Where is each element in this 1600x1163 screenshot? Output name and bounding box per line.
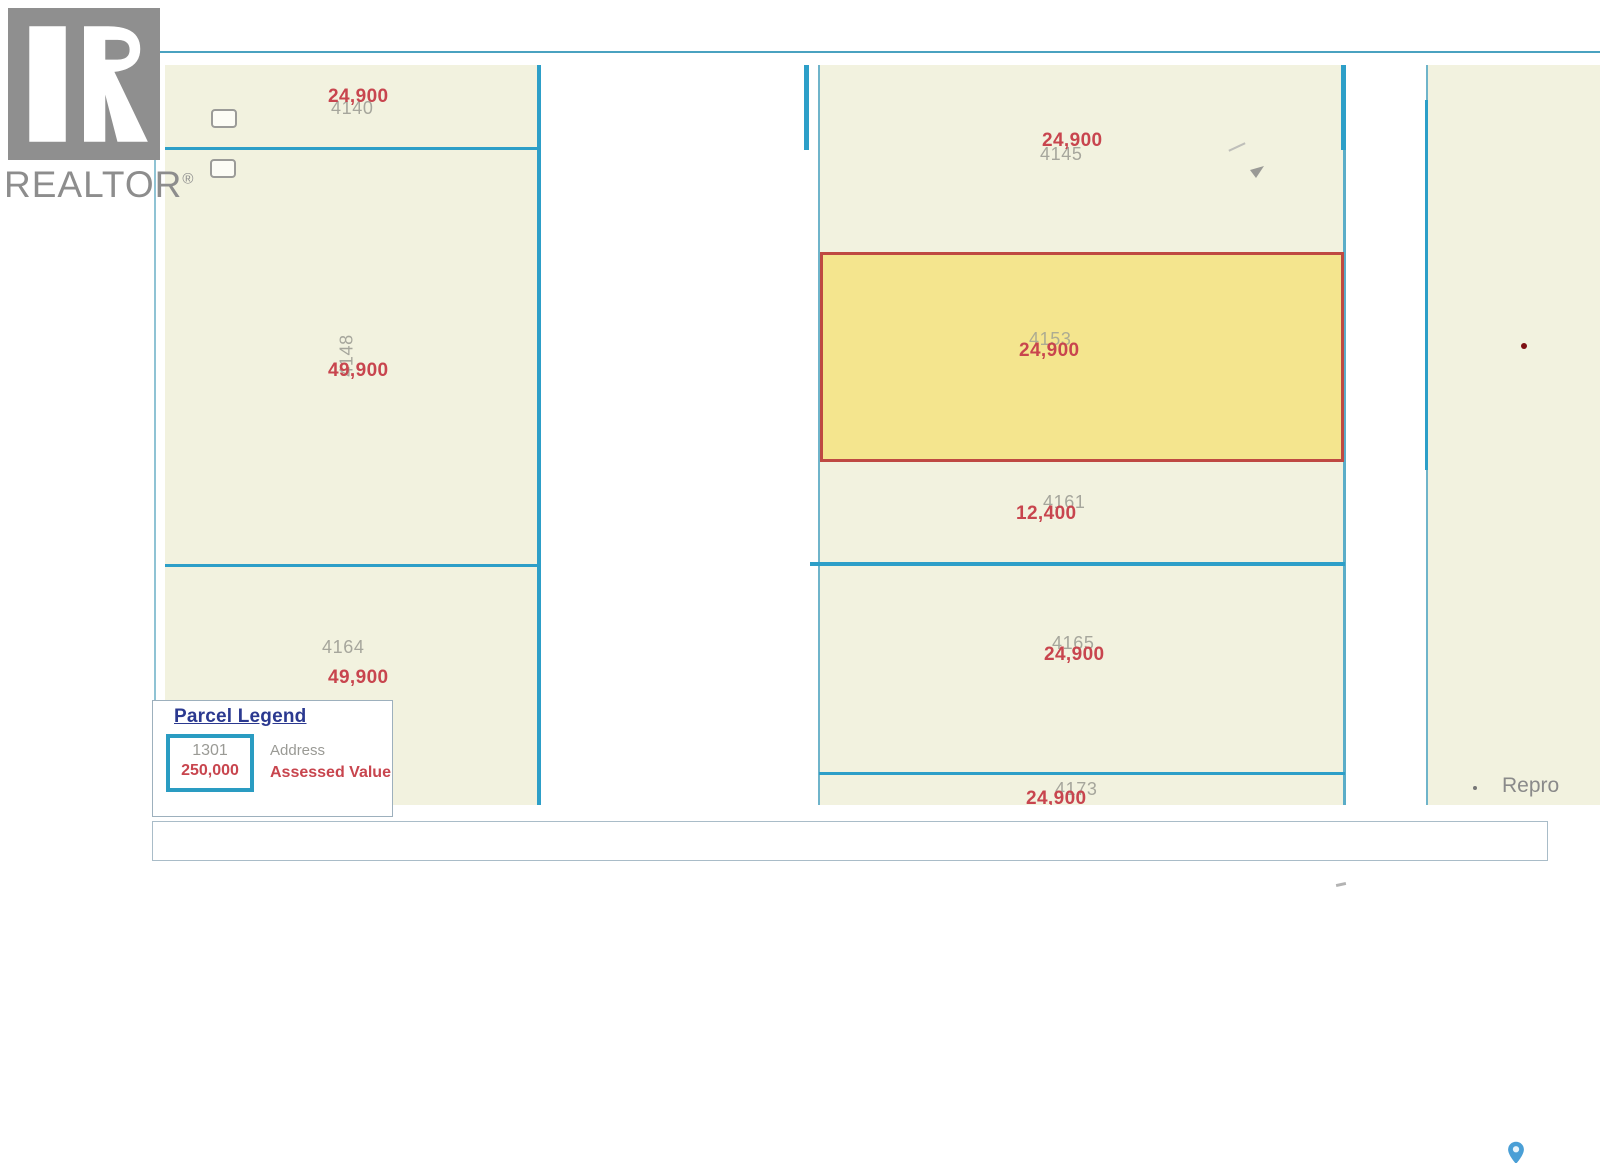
realtor-wordmark: REALTOR®: [4, 164, 194, 206]
parcel-value: 24,900: [1042, 130, 1103, 152]
legend-sample-address: 1301: [170, 742, 250, 760]
parcel-address: 4164: [322, 637, 364, 658]
parcel-4148[interactable]: 4148 49,900: [165, 150, 537, 564]
legend-sample-parcel: 1301 250,000: [166, 734, 254, 792]
small-dot: [1473, 786, 1477, 790]
parcel-right-unlabeled[interactable]: Repro: [1428, 65, 1600, 805]
parcel-map-screen: 24,900 4140 4148 49,900 4164 49,900 24,9…: [0, 0, 1600, 1163]
parcel-value: 49,900: [328, 360, 389, 382]
middle-left-thick-segment: [804, 65, 809, 150]
legend-sample-value: 250,000: [170, 762, 250, 780]
parcel-value: 24,900: [1019, 340, 1080, 362]
map-pin-icon[interactable]: [1507, 1140, 1525, 1163]
parcel-value: 24,900: [1044, 644, 1105, 666]
parcel-4165[interactable]: 4165 24,900: [819, 569, 1345, 769]
parcel-value: 24,900: [1026, 788, 1087, 805]
realtor-logo: [8, 8, 160, 160]
parcel-4140[interactable]: 24,900 4140: [165, 65, 537, 147]
parcel-value: 12,400: [1016, 503, 1077, 525]
map-boundary-top: [155, 51, 1600, 53]
left-block-right-boundary: [537, 65, 541, 805]
registered-mark: ®: [182, 171, 194, 188]
legend-title: Parcel Legend: [174, 706, 306, 728]
map-point-marker: [1521, 343, 1527, 349]
parcel-4173[interactable]: 4173 24,900: [819, 775, 1345, 805]
cursor-arrow-icon: [1250, 166, 1267, 180]
parcel-4153-highlighted[interactable]: 4153 24,900: [820, 252, 1344, 462]
parcel-checkbox-2[interactable]: [210, 159, 236, 178]
legend-address-label: Address: [270, 742, 325, 759]
truncated-map-note: Repro: [1502, 774, 1559, 798]
parcel-checkbox-1[interactable]: [211, 109, 237, 128]
smudge-artifact: [1336, 882, 1346, 887]
parcel-4161[interactable]: 4161 12,400: [819, 462, 1345, 562]
legend-assessed-value-label: Assessed Value: [270, 764, 391, 782]
parcel-value: 49,900: [328, 667, 389, 689]
realtor-wordmark-text: REALTOR: [4, 164, 182, 205]
bottom-road-strip: [152, 821, 1548, 861]
boundary-4161-4165: [810, 562, 1345, 566]
parcel-4145[interactable]: 24,900 4145: [819, 65, 1345, 252]
parcel-value: 24,900: [328, 86, 389, 108]
parcel-legend: Parcel Legend 1301 250,000 Address Asses…: [152, 700, 393, 817]
